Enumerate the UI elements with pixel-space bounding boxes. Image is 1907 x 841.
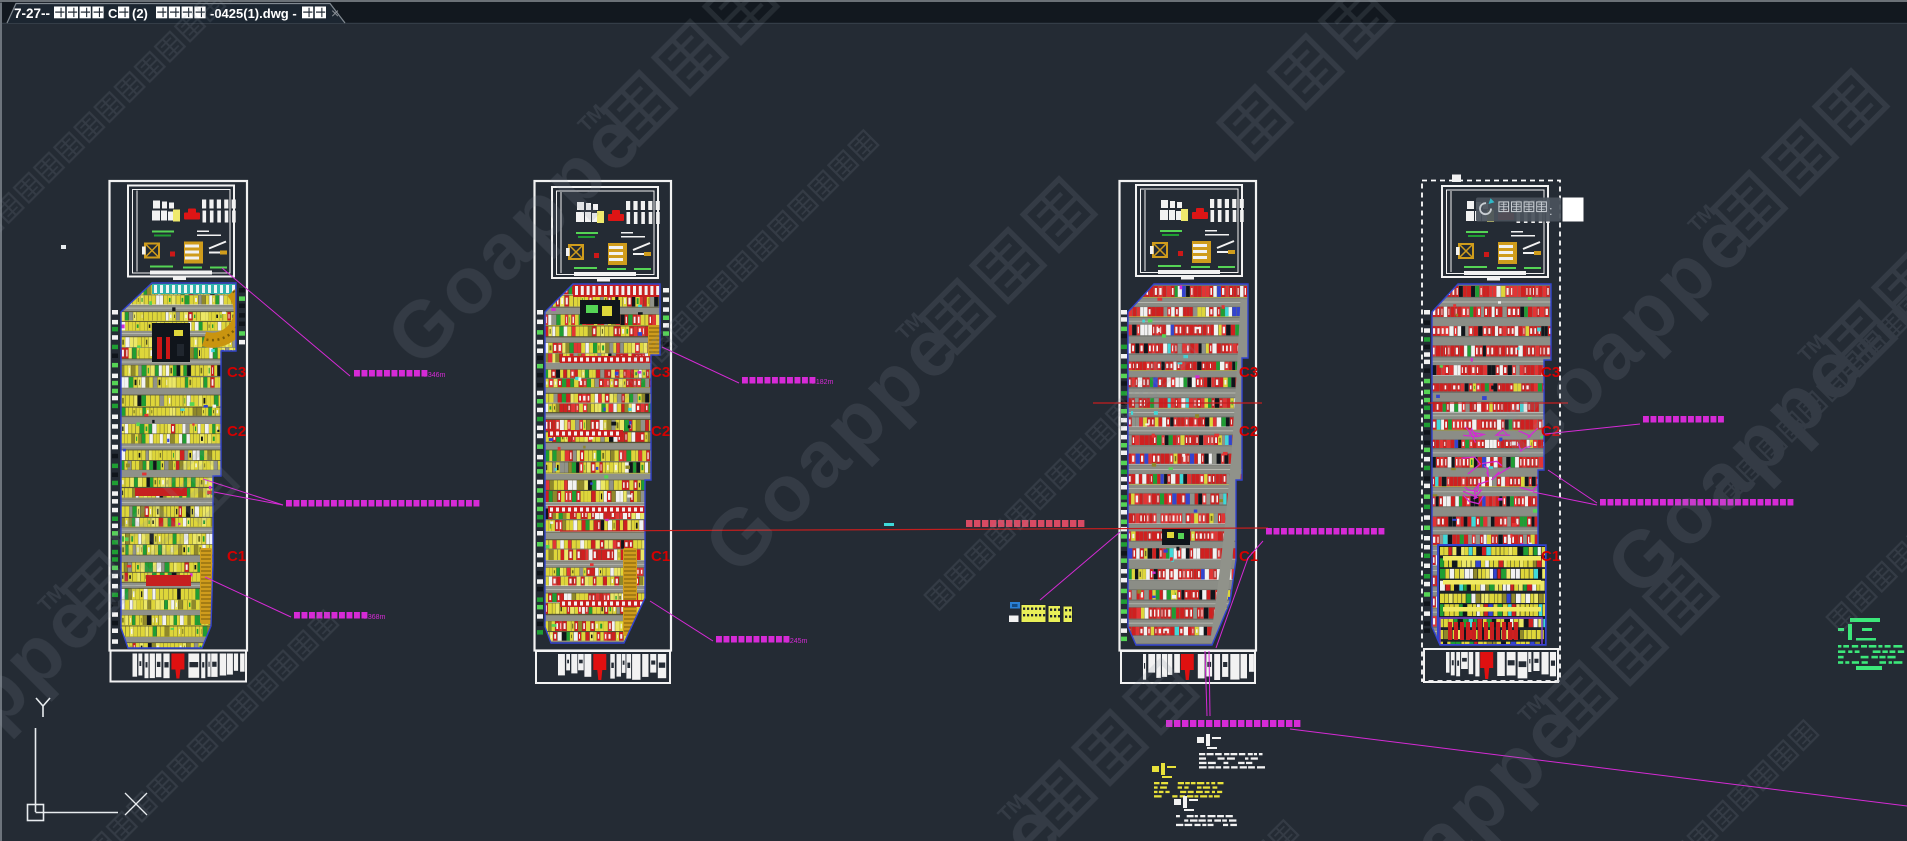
svg-text:×: × — [331, 5, 339, 21]
svg-text:C2: C2 — [651, 423, 670, 440]
svg-text:C1: C1 — [651, 548, 670, 565]
svg-text:C1: C1 — [227, 548, 246, 565]
svg-text:: 368m: : 368m — [364, 614, 386, 621]
svg-text:C2: C2 — [1239, 423, 1258, 440]
svg-text:: 245m: : 245m — [786, 638, 808, 645]
svg-text:C3: C3 — [227, 364, 246, 381]
svg-text:C3: C3 — [651, 364, 670, 381]
svg-text:7-27--: 7-27-- — [14, 6, 50, 21]
svg-text:C: C — [108, 6, 118, 21]
svg-text:(2): (2) — [132, 6, 148, 21]
svg-text:C1: C1 — [1239, 548, 1258, 565]
svg-text:C2: C2 — [227, 423, 246, 440]
svg-text:C3: C3 — [1239, 364, 1258, 381]
svg-text:C1: C1 — [1541, 548, 1560, 565]
